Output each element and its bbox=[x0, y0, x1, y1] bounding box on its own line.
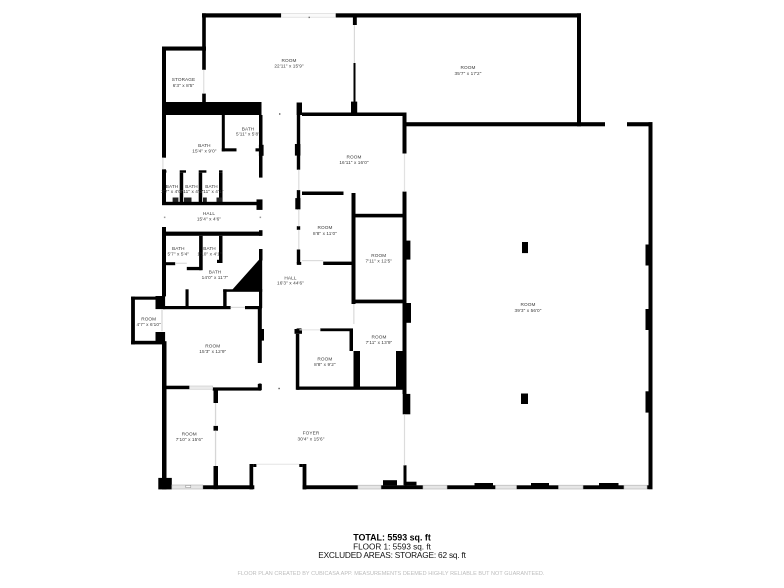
svg-text:15'4" x 4'6": 15'4" x 4'6" bbox=[197, 217, 222, 222]
svg-text:8'8" x 11'0": 8'8" x 11'0" bbox=[313, 231, 337, 236]
svg-text:8'8" x 9'2": 8'8" x 9'2" bbox=[314, 362, 336, 367]
svg-text:3'11" x 4'1": 3'11" x 4'1" bbox=[200, 189, 224, 194]
svg-text:ROOM: ROOM bbox=[521, 302, 536, 307]
svg-text:ROOM: ROOM bbox=[182, 432, 197, 437]
svg-text:FLOOR PLAN CREATED BY CUBICASA: FLOOR PLAN CREATED BY CUBICASA APP. MEAS… bbox=[237, 571, 544, 577]
svg-text:ROOM: ROOM bbox=[461, 65, 476, 70]
svg-text:STORAGE: STORAGE bbox=[172, 77, 196, 82]
svg-text:BATH: BATH bbox=[209, 269, 222, 274]
svg-text:4'7" x 6'10": 4'7" x 6'10" bbox=[137, 322, 162, 327]
svg-text:1'10" x 4'1": 1'10" x 4'1" bbox=[197, 252, 222, 257]
svg-text:EXCLUDED AREAS: STORAGE: 62 sq: EXCLUDED AREAS: STORAGE: 62 sq. ft bbox=[318, 550, 466, 560]
svg-text:FOYER: FOYER bbox=[303, 431, 320, 436]
svg-text:7'11" x 12'5": 7'11" x 12'5" bbox=[365, 259, 392, 264]
svg-text:14'0" x 11'7": 14'0" x 11'7" bbox=[202, 275, 229, 280]
svg-text:ROOM: ROOM bbox=[371, 253, 386, 258]
svg-text:5'7" x 5'4": 5'7" x 5'4" bbox=[167, 252, 189, 257]
svg-text:22'11" x 15'9": 22'11" x 15'9" bbox=[274, 63, 304, 68]
svg-text:35'7" x 17'2": 35'7" x 17'2" bbox=[454, 71, 481, 76]
svg-text:16'11" x 16'0": 16'11" x 16'0" bbox=[339, 160, 369, 165]
svg-text:6'3" x 8'5": 6'3" x 8'5" bbox=[173, 83, 195, 88]
svg-text:15'3" x 12'9": 15'3" x 12'9" bbox=[199, 349, 226, 354]
svg-text:TOTAL: 5593 sq. ft: TOTAL: 5593 sq. ft bbox=[353, 533, 431, 543]
svg-text:7'10" x 15'6": 7'10" x 15'6" bbox=[176, 437, 203, 442]
svg-text:HALL: HALL bbox=[284, 275, 296, 280]
svg-text:ROOM: ROOM bbox=[317, 356, 332, 361]
svg-text:ROOM: ROOM bbox=[318, 225, 333, 230]
svg-text:ROOM: ROOM bbox=[282, 58, 297, 63]
svg-text:39'3" x 56'0": 39'3" x 56'0" bbox=[514, 308, 541, 313]
svg-text:BATH: BATH bbox=[172, 246, 185, 251]
svg-text:ROOM: ROOM bbox=[141, 317, 156, 322]
svg-text:BATH: BATH bbox=[203, 246, 216, 251]
svg-text:ROOM: ROOM bbox=[205, 343, 220, 348]
svg-text:15'4" x 9'0": 15'4" x 9'0" bbox=[192, 149, 217, 154]
svg-text:HALL: HALL bbox=[203, 211, 215, 216]
svg-text:30'4" x 15'6": 30'4" x 15'6" bbox=[297, 436, 324, 441]
svg-text:7'11" x 13'9": 7'11" x 13'9" bbox=[366, 340, 393, 345]
svg-text:16'3" x 44'6": 16'3" x 44'6" bbox=[277, 281, 304, 286]
svg-text:ROOM: ROOM bbox=[347, 154, 362, 159]
svg-text:BATH: BATH bbox=[242, 126, 255, 131]
svg-text:ROOM: ROOM bbox=[372, 335, 387, 340]
svg-text:BATH: BATH bbox=[198, 143, 211, 148]
svg-text:5'11" x 5'8": 5'11" x 5'8" bbox=[236, 132, 260, 137]
